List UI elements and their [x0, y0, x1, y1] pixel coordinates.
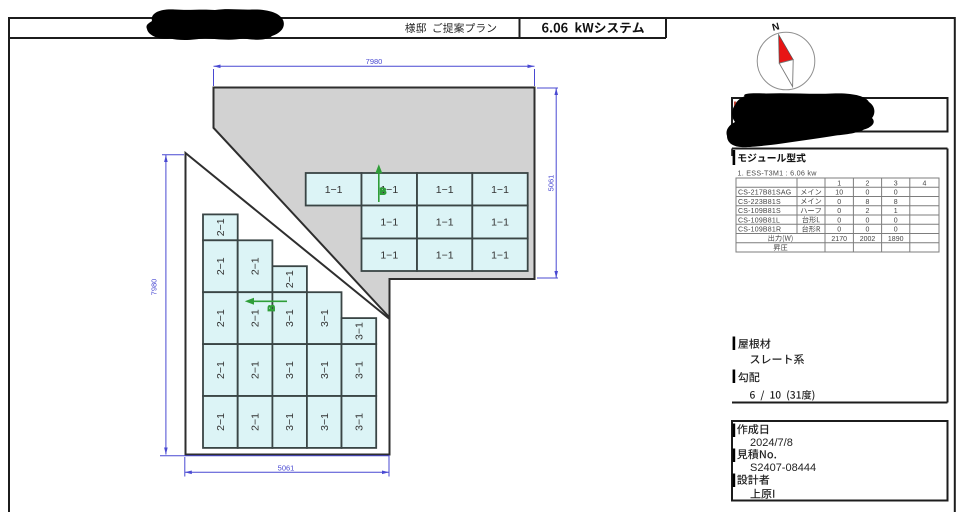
svg-text:S2407-08444: S2407-08444 — [750, 462, 816, 474]
svg-text:3−1: 3−1 — [284, 361, 296, 379]
svg-text:1: 1 — [894, 208, 898, 215]
svg-text:0: 0 — [837, 208, 841, 215]
svg-text:2−1: 2−1 — [215, 361, 227, 379]
svg-text:0: 0 — [837, 199, 841, 206]
svg-text:0: 0 — [837, 217, 841, 224]
svg-text:3−1: 3−1 — [319, 309, 331, 327]
svg-text:CS-109B81R: CS-109B81R — [738, 227, 781, 234]
svg-text:5061: 5061 — [546, 175, 555, 192]
svg-text:2: 2 — [866, 208, 870, 215]
svg-text:2−1: 2−1 — [215, 309, 227, 327]
svg-text:3−1: 3−1 — [353, 361, 365, 379]
svg-text:CS-217B81SAG: CS-217B81SAG — [738, 190, 791, 197]
svg-text:2002: 2002 — [860, 236, 876, 243]
svg-text:1−1: 1−1 — [325, 184, 343, 196]
svg-text:2: 2 — [866, 180, 870, 187]
svg-text:3−1: 3−1 — [319, 361, 331, 379]
svg-text:0: 0 — [894, 190, 898, 197]
svg-text:B: B — [380, 186, 387, 197]
svg-text:1−1: 1−1 — [491, 217, 509, 229]
svg-text:2−1: 2−1 — [250, 413, 262, 431]
svg-text:1−1: 1−1 — [436, 217, 454, 229]
svg-text:1−1: 1−1 — [436, 184, 454, 196]
svg-text:1−1: 1−1 — [380, 249, 398, 261]
svg-text:1−1: 1−1 — [491, 184, 509, 196]
svg-text:2−1: 2−1 — [250, 361, 262, 379]
svg-text:2−1: 2−1 — [215, 413, 227, 431]
svg-text:B: B — [266, 305, 277, 312]
svg-text:7980: 7980 — [150, 279, 159, 296]
svg-text:2−1: 2−1 — [250, 257, 262, 275]
svg-text:0: 0 — [866, 227, 870, 234]
svg-text:3−1: 3−1 — [353, 322, 365, 340]
svg-text:1−1: 1−1 — [380, 217, 398, 229]
svg-text:1−1: 1−1 — [491, 249, 509, 261]
svg-text:1: 1 — [837, 180, 841, 187]
svg-text:1890: 1890 — [888, 236, 904, 243]
svg-text:3−1: 3−1 — [319, 413, 331, 431]
svg-text:2−1: 2−1 — [284, 270, 296, 288]
svg-text:3: 3 — [894, 180, 898, 187]
svg-text:10: 10 — [835, 190, 843, 197]
svg-text:7980: 7980 — [366, 57, 383, 66]
svg-text:5061: 5061 — [278, 463, 295, 472]
svg-text:0: 0 — [894, 227, 898, 234]
svg-text:2−1: 2−1 — [215, 257, 227, 275]
svg-text:0: 0 — [866, 217, 870, 224]
svg-text:1−1: 1−1 — [436, 249, 454, 261]
svg-text:0: 0 — [837, 227, 841, 234]
svg-text:3−1: 3−1 — [353, 413, 365, 431]
svg-text:0: 0 — [866, 190, 870, 197]
svg-text:CS-223B81S: CS-223B81S — [738, 199, 781, 206]
svg-text:3−1: 3−1 — [284, 413, 296, 431]
svg-text:CS-109B81S: CS-109B81S — [738, 208, 781, 215]
svg-text:2−1: 2−1 — [215, 218, 227, 236]
svg-text:8: 8 — [894, 199, 898, 206]
svg-text:0: 0 — [894, 217, 898, 224]
svg-text:8: 8 — [866, 199, 870, 206]
svg-text:2024/7/8: 2024/7/8 — [750, 437, 793, 449]
svg-text:CS-109B81L: CS-109B81L — [738, 217, 780, 224]
svg-text:2−1: 2−1 — [250, 309, 262, 327]
svg-text:3−1: 3−1 — [284, 309, 296, 327]
svg-text:2170: 2170 — [831, 236, 847, 243]
svg-text:4: 4 — [922, 180, 926, 187]
svg-text:1. ESS-T3M1 : 6.06 kw: 1. ESS-T3M1 : 6.06 kw — [738, 168, 818, 177]
